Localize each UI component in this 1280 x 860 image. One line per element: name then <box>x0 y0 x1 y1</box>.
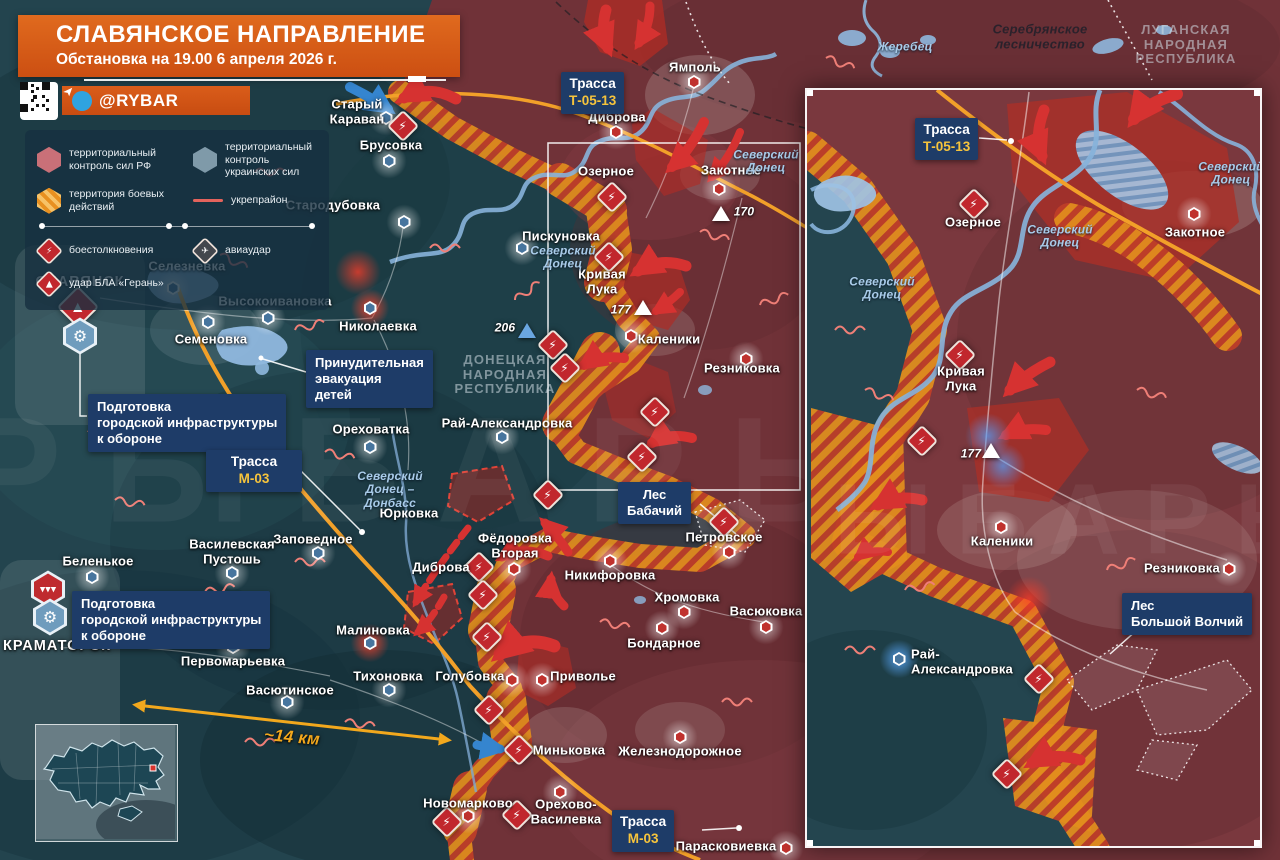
qr-code <box>20 82 58 120</box>
combat-zone-icon <box>37 188 61 214</box>
inset-map-graphics <box>807 90 1262 848</box>
title-banner: СЛАВЯНСКОЕ НАПРАВЛЕНИЕ Обстановка на 19.… <box>18 15 460 77</box>
evacuation-callout: Принудительная эвакуация детей <box>306 350 433 408</box>
highway-word: Трасса <box>620 814 666 829</box>
inset-corner <box>807 840 813 846</box>
legend-divider <box>41 226 313 227</box>
defense-prep-callout: Подготовка городской инфраструктуры к об… <box>72 591 270 649</box>
legend-text: укрепрайон <box>231 194 287 207</box>
rf-control-icon <box>37 147 61 173</box>
legend-text: боестолкновения <box>69 244 153 257</box>
forest-callout: Лес Большой Волчий <box>1122 593 1252 635</box>
highway-word: Трасса <box>231 454 277 469</box>
highway-number: Т-05-13 <box>569 93 616 108</box>
banner-underline <box>84 79 446 81</box>
legend-item-ua: территориальный контроль украинских сил <box>193 141 317 179</box>
clashes-icon: ⚡ <box>35 237 63 265</box>
highway-number: М-03 <box>628 831 659 846</box>
height-triangle <box>982 443 1000 458</box>
legend-item-fort: укрепрайон <box>193 188 317 214</box>
height-triangle <box>634 300 652 315</box>
highway-number: Т-05-13 <box>923 139 970 154</box>
airstrike-icon: ✈ <box>191 237 219 265</box>
legend-item-combat: территория боевых действий <box>37 188 189 214</box>
qr-pattern <box>20 82 50 112</box>
forest-callout: Лес Бабачий <box>618 482 691 524</box>
inset-corner <box>1254 840 1260 846</box>
legend-text: территориальный контроль сил РФ <box>69 147 189 172</box>
legend-item-air: ✈авиаудар <box>193 239 317 263</box>
height-triangle <box>712 206 730 221</box>
ua-control-icon <box>193 147 217 173</box>
height-triangle <box>518 323 536 338</box>
inset-panel: РЫБАРЬ ⚡ ⚡ ⚡ ⚡ ⚡ 177 Озерное Закотное Кр… <box>805 88 1262 848</box>
minimap-graphics <box>36 725 175 839</box>
legend-item-drone: ▲удар БЛА «Герань» <box>37 272 189 296</box>
banner-dash <box>408 76 426 82</box>
highway-label: ТрассаМ-03 <box>612 810 674 852</box>
legend-panel: территориальный контроль сил РФ территор… <box>25 130 329 310</box>
defense-prep-callout: Подготовка городской инфраструктуры к об… <box>88 394 286 452</box>
telegram-icon <box>72 91 92 111</box>
geran-strike-icon: ▲ <box>35 270 63 298</box>
highway-word: Трасса <box>924 122 970 137</box>
map-subtitle: Обстановка на 19.00 6 апреля 2026 г. <box>56 51 460 69</box>
legend-text: территория боевых действий <box>69 188 189 213</box>
legend-item-clash: ⚡боестолкновения <box>37 239 189 263</box>
legend-text: авиаудар <box>225 244 271 257</box>
channel-handle: @RYBAR <box>99 91 178 111</box>
ukraine-minimap <box>35 724 178 842</box>
highway-number: М-03 <box>239 471 270 486</box>
highway-label: ТрассаМ-03 <box>206 450 302 492</box>
legend-item-rf: территориальный контроль сил РФ <box>37 141 189 179</box>
fortified-line-icon <box>193 199 223 202</box>
legend-text: территориальный контроль украинских сил <box>225 141 317 179</box>
highway-label: ТрассаТ-05-13 <box>561 72 624 114</box>
telegram-badge[interactable]: @RYBAR <box>62 86 250 115</box>
inset-corner <box>807 90 813 96</box>
map-title: СЛАВЯНСКОЕ НАПРАВЛЕНИЕ <box>56 21 460 49</box>
legend-text: удар БЛА «Герань» <box>69 277 164 290</box>
highway-label: ТрассаТ-05-13 <box>915 118 978 160</box>
map-canvas: РЫБАРЬ ⚡ ⚡ ⚡ ⚡ ⚡ ⚡ ⚡ ⚡ ⚡ ⚡ ⚡ ⚡ ⚡ ⚡ ⚡ ⚡ ▲… <box>0 0 1280 860</box>
highway-word: Трасса <box>570 76 616 91</box>
inset-corner <box>1254 90 1260 96</box>
